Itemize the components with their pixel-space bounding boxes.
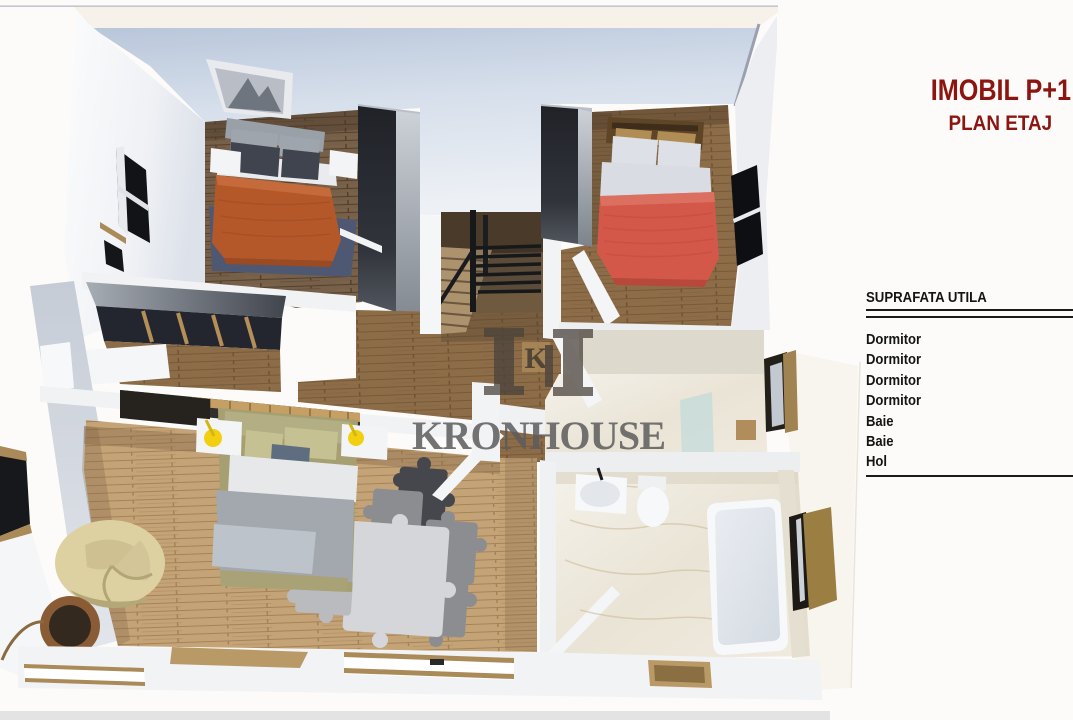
svg-text:KRONHOUSE: KRONHOUSE <box>412 413 666 458</box>
svg-text:K: K <box>524 342 548 375</box>
